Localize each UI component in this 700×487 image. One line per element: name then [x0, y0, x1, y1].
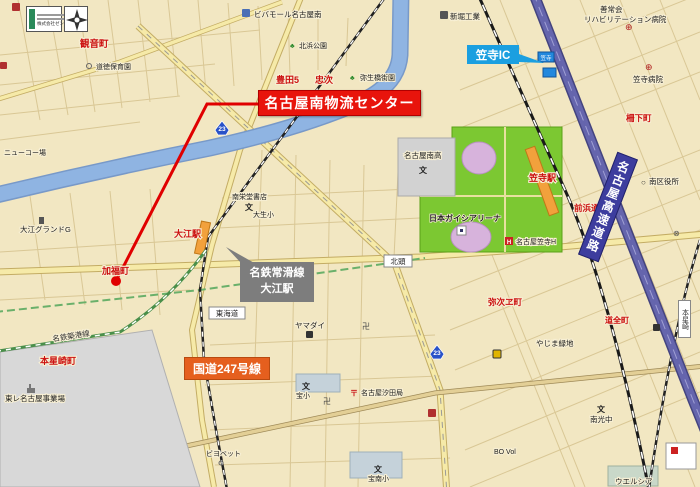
shop-label: BO Vol — [494, 449, 516, 456]
school-icon: 文 — [419, 165, 428, 175]
hotel-label: 名古屋笠寺H — [516, 237, 556, 246]
station-label: 笠寺駅 — [528, 172, 557, 183]
poi-icon — [0, 62, 7, 69]
factory-poi-icon — [440, 11, 448, 19]
landmark-icon: ⊗ — [673, 229, 680, 238]
poi-label: ビヨベット — [206, 449, 241, 458]
poi-icon — [653, 324, 660, 331]
hospital-label: 善常会 — [600, 4, 623, 14]
hospital-label: リハビリテーション病院 — [584, 14, 667, 24]
main-destination-label: 名古屋南物流センター — [265, 93, 415, 113]
school-label: 宝小 — [296, 391, 310, 400]
town-label: 柵下町 — [626, 113, 652, 123]
poi-label: ヤマダイ — [295, 320, 325, 330]
factory-area — [0, 330, 200, 487]
shop-label: ウエルシア — [615, 477, 653, 486]
route-247-callout: 国道247号線 — [184, 357, 270, 380]
factory-icon — [27, 388, 35, 393]
route-23-shield: 23 — [430, 345, 444, 359]
tree-icon: ♣ — [290, 43, 295, 50]
town-label: 加福町 — [101, 265, 129, 276]
route-23-shield: 23 — [215, 121, 229, 135]
park-label: 弥生橋街園 — [360, 73, 395, 82]
temple-icon: 卍 — [362, 322, 370, 331]
green-label: やじま緑地 — [536, 338, 574, 348]
park-label: 北浜公園 — [299, 41, 327, 50]
tree-icon: ♣ — [350, 75, 355, 82]
route-23-number: 23 — [218, 126, 226, 133]
town-label: 豊田5 — [276, 74, 299, 85]
school-icon: 文 — [302, 381, 311, 391]
gov-label: 南区役所 — [649, 176, 679, 186]
temple-poi-icon — [671, 447, 678, 454]
kasadera-ic-callout: 笠寺IC — [467, 45, 519, 64]
poi-label: ニューコー場 — [4, 148, 46, 157]
school-icon: 文 — [597, 404, 606, 414]
honhoshizaki-station-box: 本星崎 — [678, 300, 691, 338]
station-label: 大江駅 — [174, 228, 202, 239]
tollgate-sign — [543, 68, 556, 77]
poi-icon — [428, 409, 436, 417]
line-name-label: 名鉄常滑線 — [250, 266, 305, 282]
poi-label: 南栄堂書店 — [232, 192, 267, 201]
poi-icon — [493, 350, 501, 358]
hotel-icon-letter: H — [507, 240, 511, 246]
hospital-icon: ⊕ — [645, 62, 653, 72]
stamp-logo-bar — [29, 9, 35, 29]
post-label: 名古屋汐田局 — [361, 388, 403, 397]
kasadera-ic-label: 笠寺IC — [476, 47, 511, 63]
school-icon: 文 — [374, 464, 383, 474]
shop-icon — [306, 331, 313, 338]
temple-grounds — [666, 443, 696, 469]
poi-label: 大江グランドG — [20, 224, 71, 234]
monument-icon — [39, 217, 44, 224]
nursery-icon — [87, 64, 92, 69]
poi-label: 道徳保育園 — [96, 62, 131, 71]
arena-label: 日本ガイシアリーナ — [429, 213, 501, 223]
destination-dot — [111, 276, 121, 286]
compass-star — [65, 7, 89, 33]
map-canvas: 23 23 笠寺 北頭 東海道 H ⊕ — [0, 0, 700, 487]
kasadera-exit-label: 笠寺 — [540, 54, 552, 62]
highway-signs: 笠寺 — [538, 52, 556, 77]
post-office-icon: 〒 — [350, 389, 358, 398]
poi-icon — [12, 3, 20, 11]
factory-label: 東レ名古屋事業場 — [5, 393, 65, 403]
town-label: 道全町 — [605, 315, 629, 325]
school-label: 大生小 — [253, 210, 274, 219]
temple-icon: 卍 — [323, 397, 331, 406]
poi-label: 新堀工業 — [450, 11, 480, 21]
town-label: 観音町 — [80, 38, 109, 50]
hospital-label: 笠寺病院 — [633, 74, 663, 84]
town-label: 弥次ヱ町 — [488, 297, 523, 307]
junction-kitagashira: 北頭 — [391, 257, 406, 266]
junction-tokaido: 東海道 — [216, 308, 239, 318]
town-label: 忠次 — [315, 74, 333, 85]
mall-icon — [242, 9, 250, 17]
station-name-label: 大江駅 — [261, 282, 294, 298]
ward-office-icon: ○ — [641, 178, 646, 187]
arena-building — [462, 142, 496, 174]
honhoshizaki-label: 本星崎 — [680, 309, 690, 330]
poi-label: ビバモール名古屋南 — [254, 9, 322, 19]
publisher-stamp: 株式会社ゼンリン — [26, 6, 62, 32]
school-icon: 文 — [245, 202, 254, 212]
school-label: 南光中 — [590, 414, 613, 424]
town-label: 本星崎町 — [40, 355, 76, 366]
oe-station-callout: 名鉄常滑線 大江駅 — [240, 262, 314, 302]
school-label: 宝南小 — [368, 474, 389, 483]
compass-rose — [64, 6, 88, 32]
main-destination-callout: 名古屋南物流センター — [258, 90, 421, 116]
route-23-number: 23 — [433, 350, 441, 357]
school-label: 名古屋南高 — [404, 150, 442, 160]
route-247-label: 国道247号線 — [193, 360, 261, 377]
